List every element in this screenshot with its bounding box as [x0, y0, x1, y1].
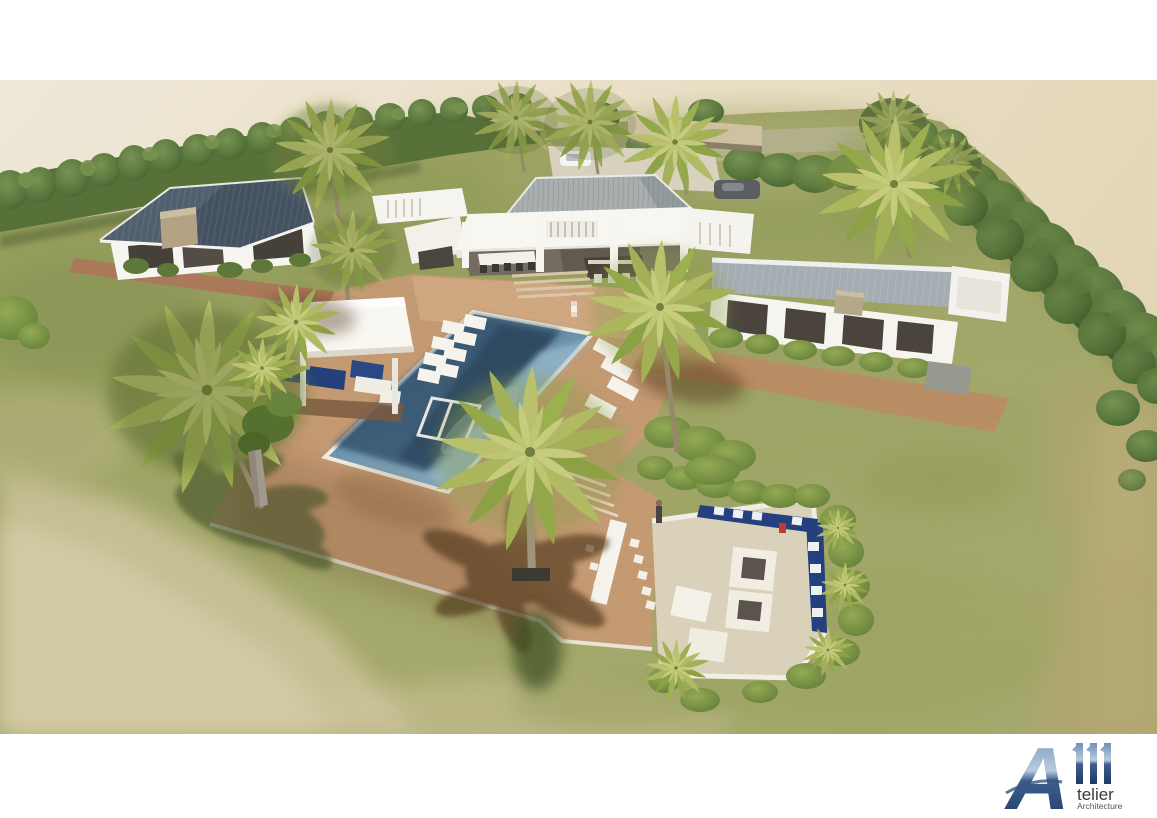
svg-text:A: A	[1004, 729, 1070, 818]
svg-text:Architecture: Architecture	[1077, 801, 1123, 811]
